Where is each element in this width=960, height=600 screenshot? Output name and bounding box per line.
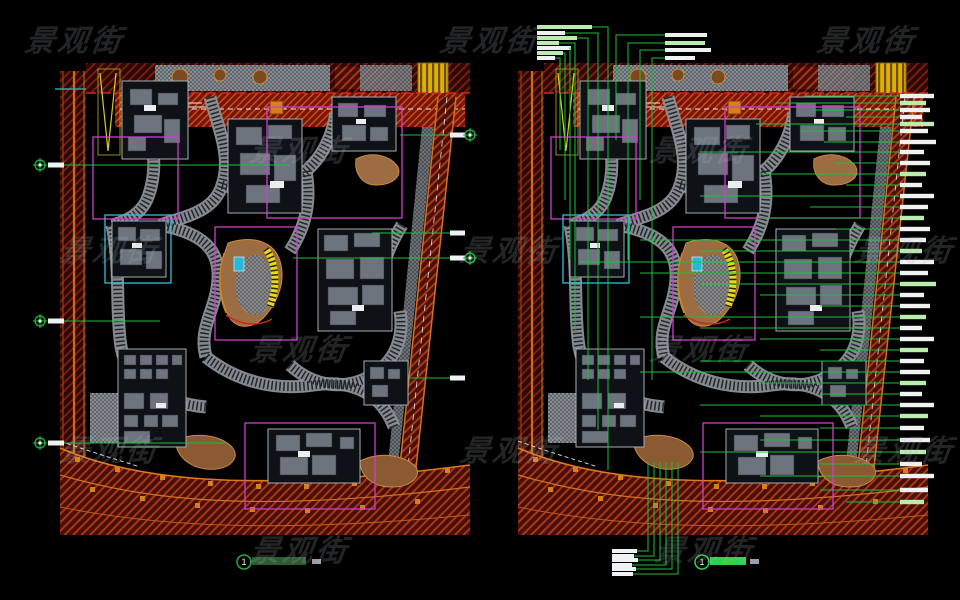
figure-title-bar [252, 557, 306, 565]
drawing-svg: 11 [0, 0, 960, 600]
figure-number: 1 [699, 557, 704, 567]
figure-number: 1 [241, 557, 246, 567]
figure-title-bar [710, 557, 746, 565]
figure-labels: 11 [237, 555, 759, 569]
figure-label-right: 1 [695, 555, 759, 569]
cad-canvas: 11 景观街景观街景观街景观街景观街景观街景观街景观街景观街景观街景观街景观街景… [0, 0, 960, 600]
figure-label-left: 1 [237, 555, 321, 569]
figure-scale-bar [312, 559, 321, 564]
site-plan-left [60, 63, 470, 535]
figure-scale-bar [750, 559, 759, 564]
